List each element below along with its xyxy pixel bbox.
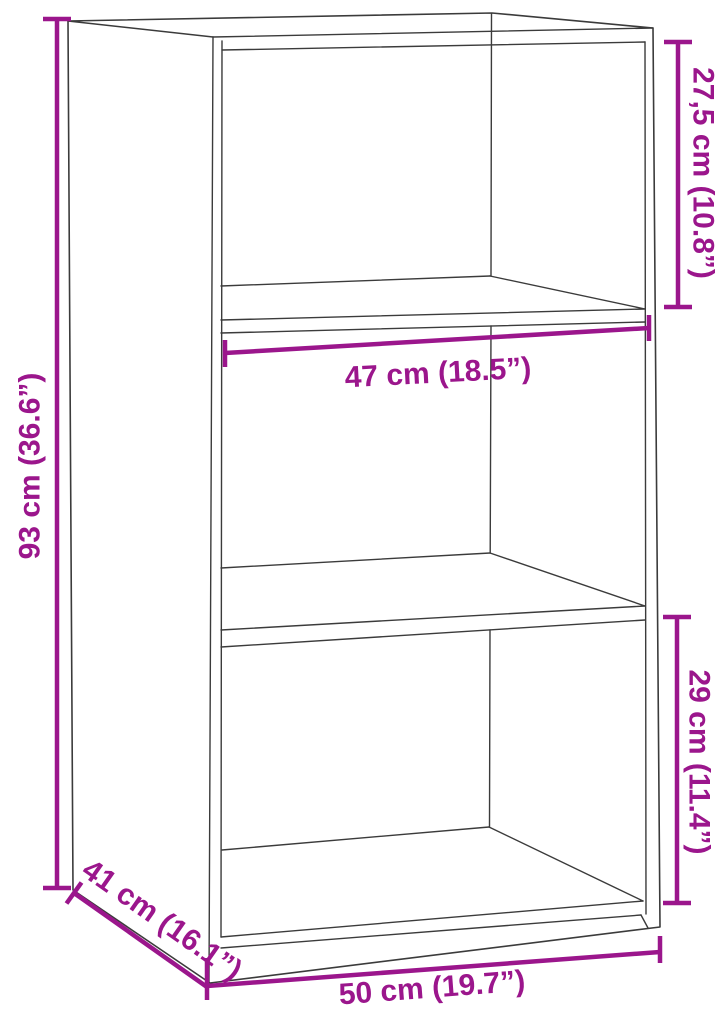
dimension-top-compartment-label: 27,5 cm (10.8”) [687, 67, 720, 279]
cabinet-dimension-diagram: 93 cm (36.6”) 27,5 cm (10.8”) 47 cm (18.… [0, 0, 724, 1020]
dimension-lower-compartment-label: 29 cm (11.4”) [683, 669, 716, 854]
back-corner-edge-lower [490, 630, 491, 827]
back-corner-edge-upper [491, 14, 492, 276]
right-stile-inner-edge [645, 42, 646, 914]
dimension-width-label: 50 cm (19.7”) [338, 965, 527, 1012]
dimension-top-compartment: 27,5 cm (10.8”) [664, 42, 720, 307]
cabinet-structure [68, 13, 660, 983]
dimension-lower-compartment: 29 cm (11.4”) [663, 617, 716, 903]
dimension-height-label: 93 cm (36.6”) [14, 373, 47, 560]
dimension-diagram-page: 93 cm (36.6”) 27,5 cm (10.8”) 47 cm (18.… [0, 0, 724, 1020]
dimension-height: 93 cm (36.6”) [14, 19, 72, 888]
